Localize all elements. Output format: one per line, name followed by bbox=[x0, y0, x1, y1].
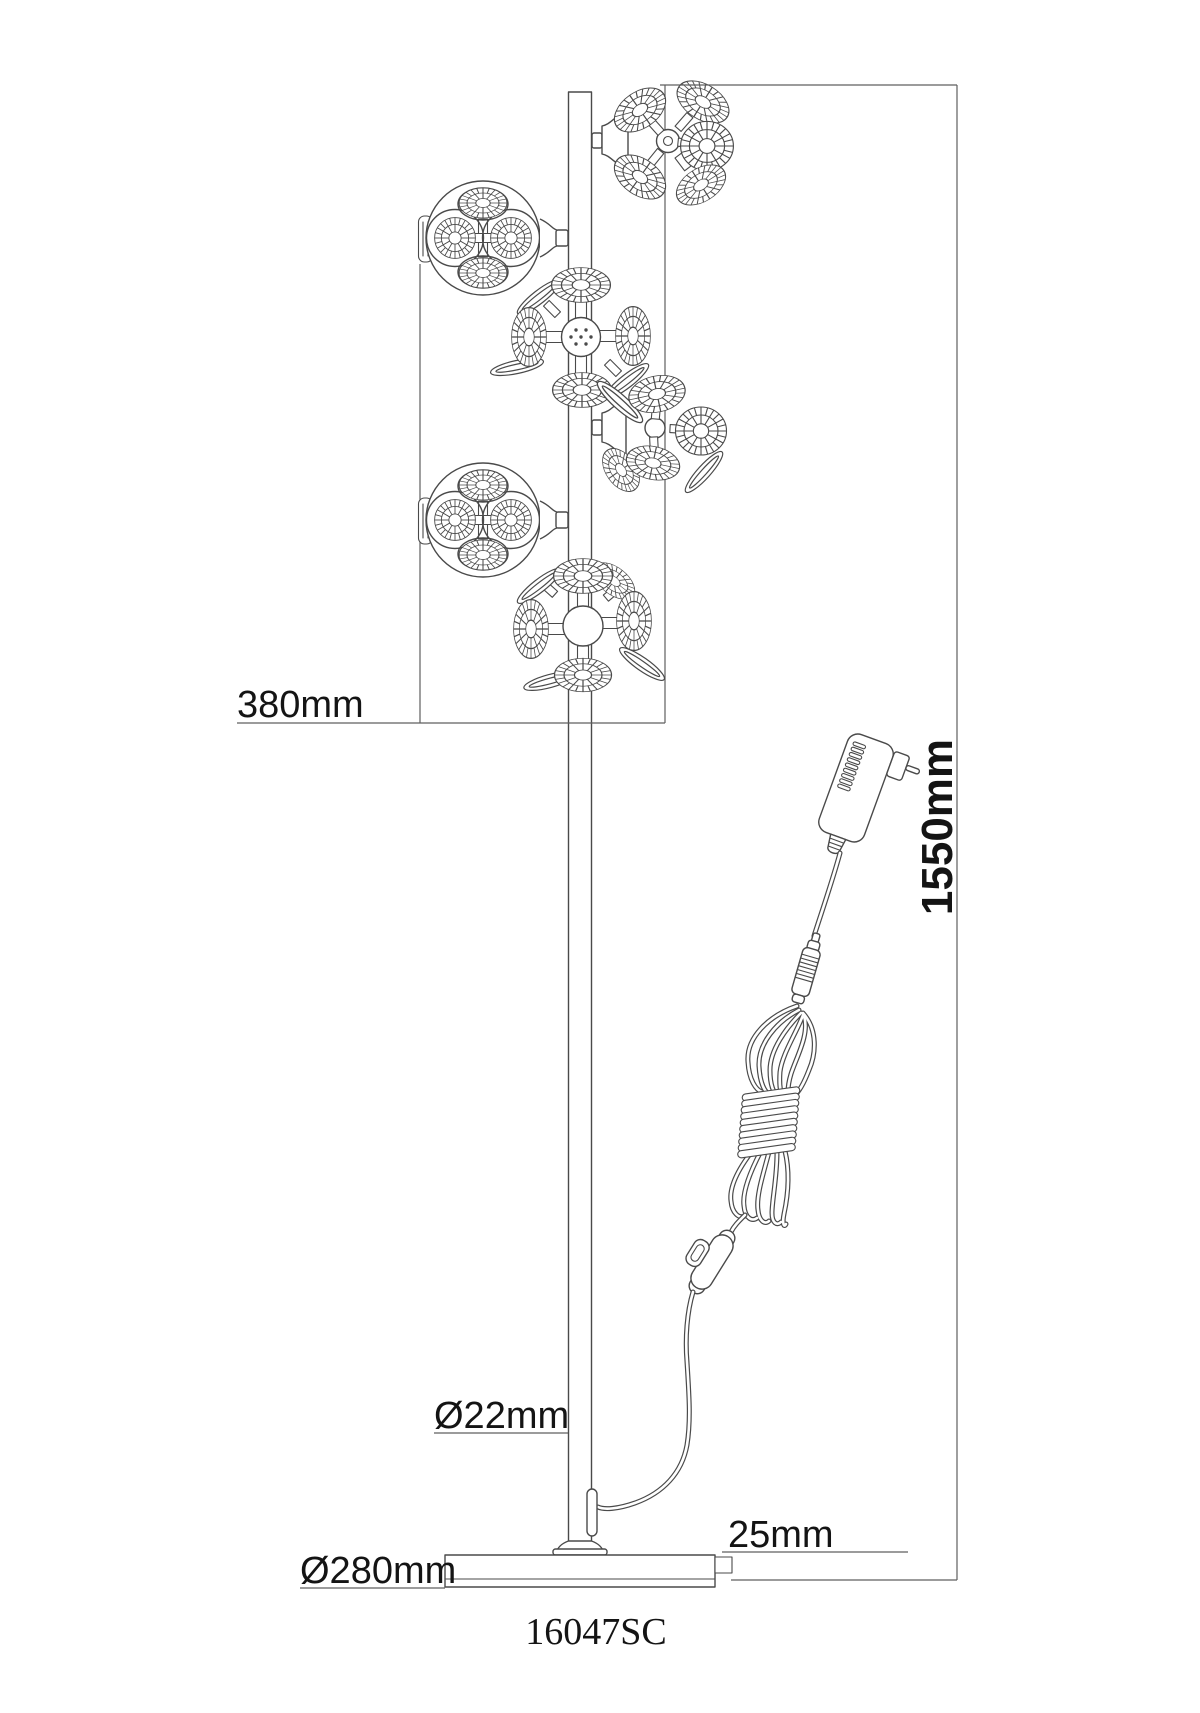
drawing-svg: 380mm 1550mm Ø22mm Ø280mm 25mm 16047SC bbox=[0, 0, 1200, 1713]
base-plate bbox=[445, 1555, 715, 1587]
lamp-base bbox=[445, 1541, 732, 1587]
technical-drawing-floor-lamp: 380mm 1550mm Ø22mm Ø280mm 25mm 16047SC bbox=[0, 0, 1200, 1713]
label-base-diameter: Ø280mm bbox=[300, 1550, 456, 1592]
barrel-connector bbox=[789, 931, 826, 1005]
head-cone bbox=[540, 501, 557, 539]
coil-wraps bbox=[737, 1086, 800, 1158]
cable-grommet bbox=[587, 1489, 597, 1536]
lamp-head-middle-right bbox=[592, 370, 727, 498]
coiled-cable bbox=[731, 1006, 815, 1226]
label-pole-diameter: Ø22mm bbox=[434, 1395, 569, 1437]
label-base-height: 25mm bbox=[728, 1514, 834, 1556]
lamp-head-lower-left-sphere bbox=[419, 463, 569, 577]
head-hub bbox=[645, 418, 665, 438]
lamp-head-upper-left-sphere bbox=[419, 181, 569, 295]
lamp-head-middle-front bbox=[489, 268, 652, 408]
base-edge-step bbox=[715, 1557, 732, 1573]
inline-switch bbox=[672, 1218, 741, 1298]
head-hub bbox=[563, 606, 603, 646]
model-number-label: 16047SC bbox=[525, 1611, 666, 1653]
lamp-head-lower-front bbox=[514, 556, 668, 695]
power-cable-lower bbox=[598, 1292, 693, 1509]
label-total-height: 1550mm bbox=[913, 739, 962, 915]
label-head-cluster-width: 380mm bbox=[237, 684, 364, 726]
head-cone bbox=[540, 219, 557, 257]
lamp-head-top-right bbox=[592, 72, 736, 213]
power-adapter bbox=[810, 731, 925, 871]
